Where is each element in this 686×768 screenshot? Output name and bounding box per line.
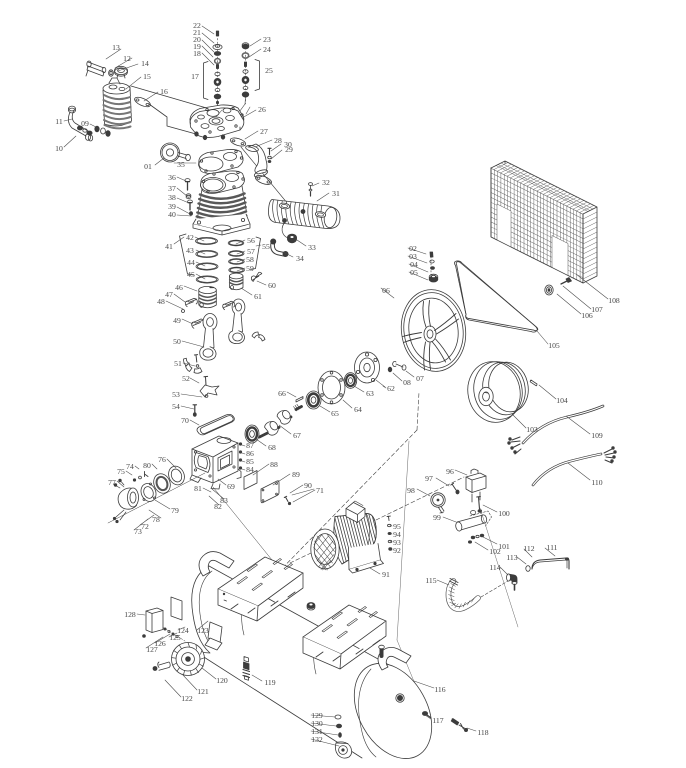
svg-text:56: 56 — [247, 236, 255, 245]
svg-text:72: 72 — [141, 522, 149, 531]
svg-text:91: 91 — [382, 570, 390, 579]
svg-text:42: 42 — [186, 233, 194, 242]
svg-text:94: 94 — [393, 530, 401, 539]
svg-text:125: 125 — [169, 633, 181, 642]
svg-text:27: 27 — [260, 127, 268, 136]
svg-text:65: 65 — [331, 409, 339, 418]
svg-text:07: 07 — [416, 374, 424, 383]
svg-text:81: 81 — [194, 484, 202, 493]
svg-text:93: 93 — [393, 538, 401, 547]
svg-text:37: 37 — [168, 184, 176, 193]
svg-text:67: 67 — [293, 431, 301, 440]
svg-text:88: 88 — [270, 460, 278, 469]
svg-text:90: 90 — [304, 481, 312, 490]
svg-text:119: 119 — [264, 678, 275, 687]
svg-text:114: 114 — [489, 563, 500, 572]
svg-text:121: 121 — [197, 687, 209, 696]
svg-text:102: 102 — [489, 547, 501, 556]
svg-text:100: 100 — [498, 509, 510, 518]
svg-text:85: 85 — [246, 457, 254, 466]
svg-text:60: 60 — [268, 281, 276, 290]
svg-text:47: 47 — [165, 290, 173, 299]
svg-text:52: 52 — [182, 374, 190, 383]
svg-text:53: 53 — [172, 390, 180, 399]
svg-text:98: 98 — [407, 486, 415, 495]
svg-text:32: 32 — [322, 178, 330, 187]
svg-text:78: 78 — [152, 515, 160, 524]
svg-text:33: 33 — [308, 243, 316, 252]
svg-text:28: 28 — [274, 136, 282, 145]
svg-text:86: 86 — [246, 449, 254, 458]
svg-text:49: 49 — [173, 316, 181, 325]
svg-text:120: 120 — [216, 676, 228, 685]
svg-text:35: 35 — [177, 160, 185, 169]
svg-text:41: 41 — [165, 242, 173, 251]
svg-text:97: 97 — [425, 474, 433, 483]
svg-text:75: 75 — [117, 467, 125, 476]
svg-text:89: 89 — [292, 470, 300, 479]
svg-text:71: 71 — [316, 486, 324, 495]
svg-text:59: 59 — [246, 264, 254, 273]
svg-text:110: 110 — [591, 478, 602, 487]
svg-text:74: 74 — [126, 462, 134, 471]
svg-text:105: 105 — [548, 341, 560, 350]
svg-text:70: 70 — [181, 416, 189, 425]
svg-text:113: 113 — [506, 553, 517, 562]
svg-text:08: 08 — [403, 378, 411, 387]
svg-text:87: 87 — [246, 441, 254, 450]
svg-text:44: 44 — [187, 258, 195, 267]
svg-text:83: 83 — [220, 496, 228, 505]
svg-text:31: 31 — [332, 189, 340, 198]
svg-text:26: 26 — [258, 105, 266, 114]
svg-text:127: 127 — [146, 645, 158, 654]
svg-text:54: 54 — [172, 402, 180, 411]
svg-text:62: 62 — [387, 384, 395, 393]
svg-text:40: 40 — [168, 210, 176, 219]
svg-text:80: 80 — [143, 461, 151, 470]
svg-text:66: 66 — [278, 389, 286, 398]
svg-text:58: 58 — [246, 255, 254, 264]
svg-text:63: 63 — [366, 389, 374, 398]
svg-text:132: 132 — [311, 735, 323, 744]
svg-text:73: 73 — [134, 527, 142, 536]
svg-text:23: 23 — [263, 35, 271, 44]
svg-text:84: 84 — [246, 465, 254, 474]
svg-text:50: 50 — [173, 337, 181, 346]
svg-text:11: 11 — [55, 117, 63, 126]
svg-text:24: 24 — [263, 45, 271, 54]
svg-text:122: 122 — [181, 694, 193, 703]
svg-text:17: 17 — [191, 72, 199, 81]
svg-text:43: 43 — [186, 246, 194, 255]
svg-text:99: 99 — [433, 513, 441, 522]
svg-text:115: 115 — [425, 576, 436, 585]
svg-text:116: 116 — [434, 685, 445, 694]
svg-text:117: 117 — [432, 716, 443, 725]
svg-text:46: 46 — [175, 283, 183, 292]
svg-text:16: 16 — [160, 87, 168, 96]
svg-text:64: 64 — [354, 405, 362, 414]
svg-text:09: 09 — [81, 119, 89, 128]
svg-text:34: 34 — [296, 254, 304, 263]
svg-text:38: 38 — [168, 193, 176, 202]
svg-text:96: 96 — [446, 467, 454, 476]
svg-text:51: 51 — [174, 359, 182, 368]
svg-text:104: 104 — [556, 396, 568, 405]
svg-text:79: 79 — [171, 506, 179, 515]
svg-text:92: 92 — [393, 546, 401, 555]
svg-text:108: 108 — [608, 296, 620, 305]
svg-text:118: 118 — [477, 728, 488, 737]
svg-text:69: 69 — [227, 482, 235, 491]
svg-text:55: 55 — [262, 242, 270, 251]
svg-text:25: 25 — [265, 66, 273, 75]
svg-text:112: 112 — [523, 544, 534, 553]
svg-text:13: 13 — [112, 43, 120, 52]
svg-text:107: 107 — [591, 305, 603, 314]
svg-text:61: 61 — [254, 292, 262, 301]
svg-text:12: 12 — [123, 54, 131, 63]
svg-text:123: 123 — [197, 626, 209, 635]
svg-text:30: 30 — [284, 140, 292, 149]
svg-text:05: 05 — [410, 268, 418, 277]
svg-text:14: 14 — [141, 59, 149, 68]
svg-text:111: 111 — [547, 543, 558, 552]
svg-text:45: 45 — [187, 270, 195, 279]
svg-text:48: 48 — [157, 297, 165, 306]
svg-text:22: 22 — [193, 21, 201, 30]
svg-text:06: 06 — [382, 286, 390, 295]
svg-text:103: 103 — [526, 425, 538, 434]
svg-text:128: 128 — [124, 610, 136, 619]
svg-text:15: 15 — [143, 72, 151, 81]
svg-text:76: 76 — [158, 455, 166, 464]
svg-text:01: 01 — [144, 162, 152, 171]
svg-text:95: 95 — [393, 522, 401, 531]
svg-text:77: 77 — [108, 478, 116, 487]
svg-text:36: 36 — [168, 173, 176, 182]
svg-text:10: 10 — [55, 144, 63, 153]
svg-text:109: 109 — [591, 431, 603, 440]
svg-text:68: 68 — [268, 443, 276, 452]
